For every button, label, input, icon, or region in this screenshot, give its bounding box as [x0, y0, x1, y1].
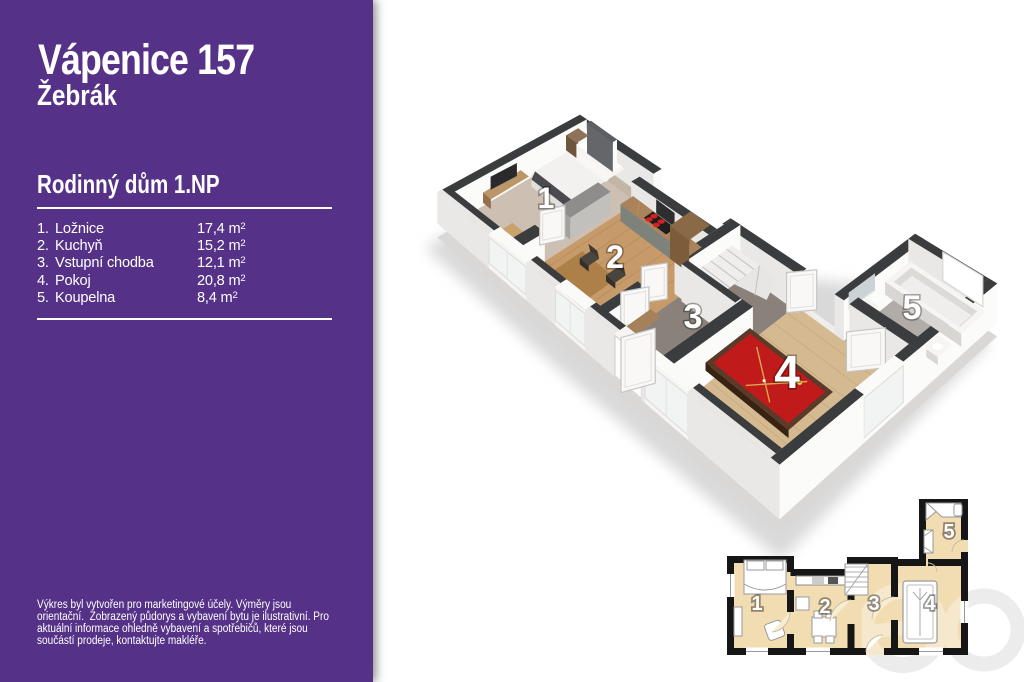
svg-text:1: 1	[538, 182, 555, 215]
svg-text:4: 4	[924, 593, 936, 615]
svg-text:5: 5	[943, 521, 954, 543]
svg-text:2: 2	[819, 596, 830, 618]
svg-text:1: 1	[751, 593, 762, 615]
svg-text:4: 4	[774, 346, 800, 398]
svg-text:3: 3	[684, 298, 703, 336]
svg-text:2: 2	[606, 239, 624, 275]
svg-text:5: 5	[903, 289, 922, 327]
svg-text:3: 3	[868, 593, 879, 615]
